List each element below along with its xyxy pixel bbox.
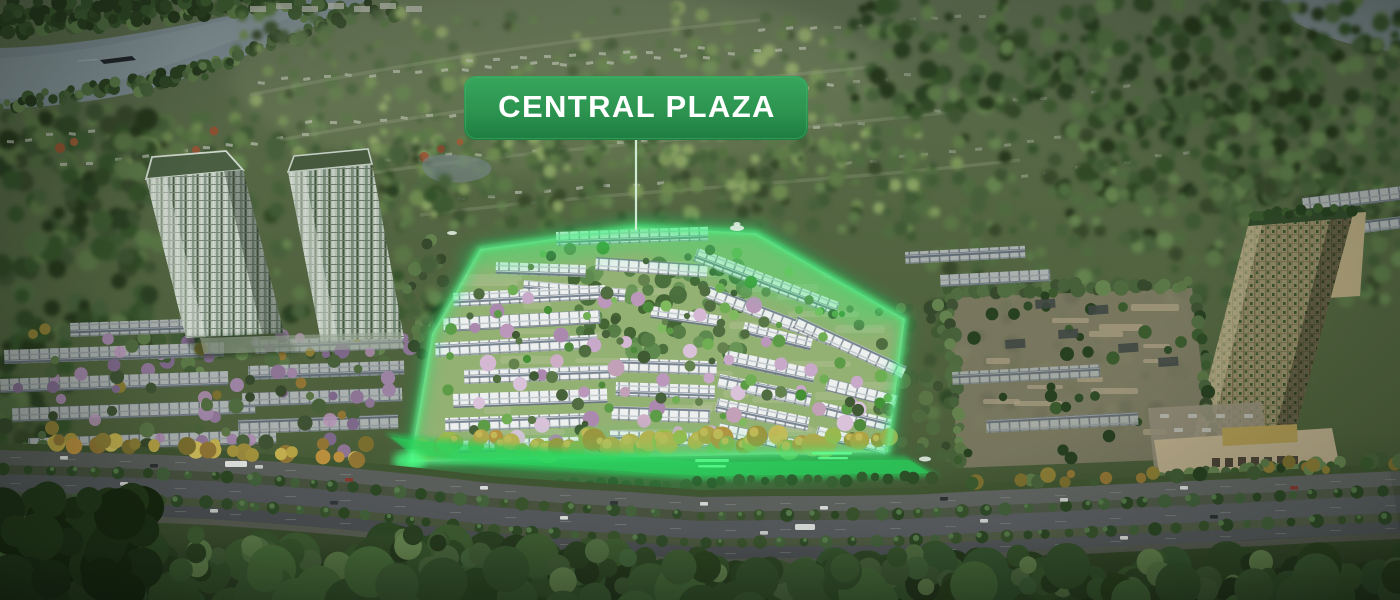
svg-text:CENTRAL PLAZA: CENTRAL PLAZA	[498, 89, 776, 124]
